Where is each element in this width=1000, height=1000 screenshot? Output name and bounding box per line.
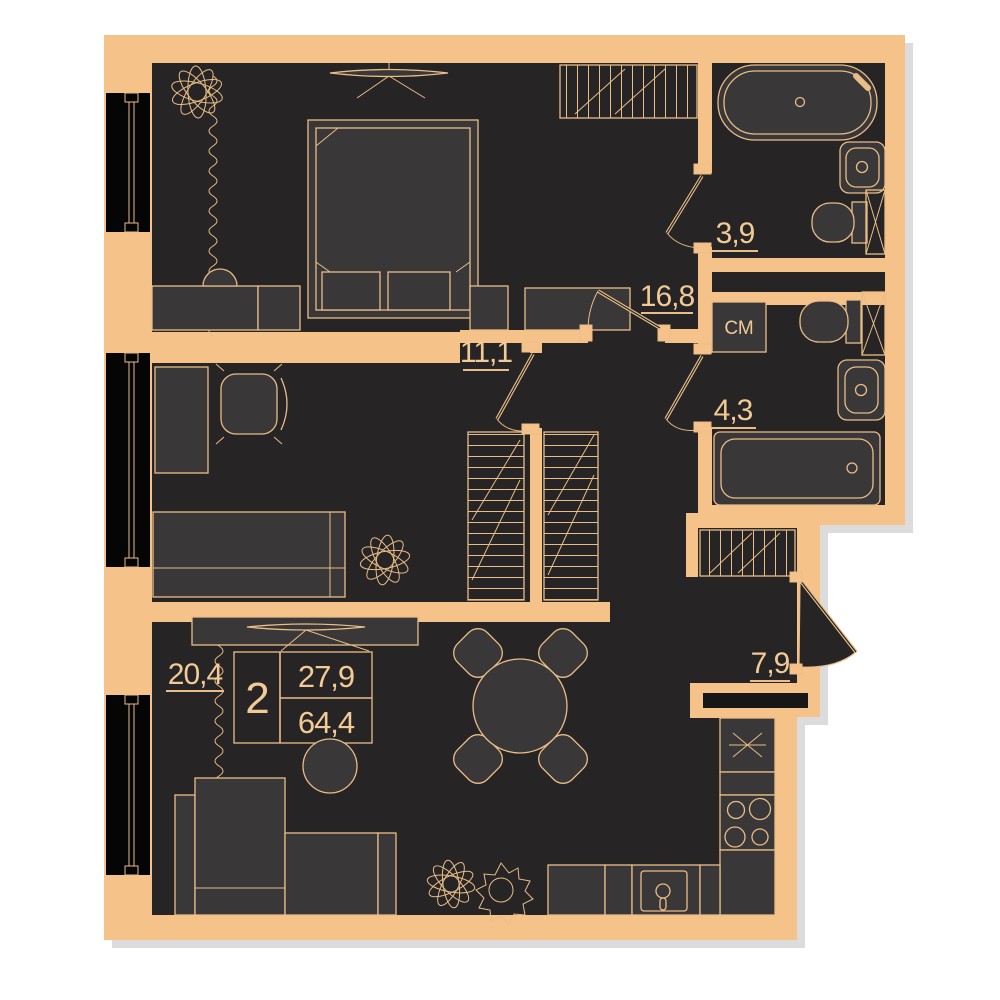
window xyxy=(106,353,150,567)
rooms-count: 2 xyxy=(245,674,268,723)
kitchen-cabinet xyxy=(700,865,720,915)
wardrobe-icon xyxy=(560,65,697,118)
bathroom-top-area-label: 3,9 xyxy=(712,217,758,251)
nightstand xyxy=(470,286,508,330)
washing-machine: СМ xyxy=(712,302,766,352)
floor-plan: 16,8 3,9 xyxy=(0,0,1000,1000)
kitchen-area-label: 7,9 xyxy=(750,647,790,681)
floor-plan-page: 16,8 3,9 xyxy=(0,0,1000,1000)
toilet-icon xyxy=(812,202,867,243)
closet-icon xyxy=(700,530,795,576)
nightstand xyxy=(258,286,300,330)
kitchen-cabinet xyxy=(720,772,775,795)
sideboard xyxy=(152,286,258,330)
desk xyxy=(155,367,208,473)
bed-icon xyxy=(308,120,478,318)
svg-text:4,3: 4,3 xyxy=(714,394,753,427)
bedroom-area-label: 16,8 xyxy=(640,280,695,313)
kitchen-cabinet xyxy=(720,850,775,915)
bathtub-icon xyxy=(718,65,877,140)
svg-text:11,1: 11,1 xyxy=(460,336,512,369)
svg-text:7,9: 7,9 xyxy=(751,647,790,680)
sink-icon xyxy=(840,142,885,193)
wall-niche xyxy=(703,693,808,708)
windows xyxy=(106,93,150,875)
kitchen-cabinet xyxy=(548,865,605,915)
window xyxy=(106,695,150,875)
svg-text:СМ: СМ xyxy=(724,318,753,339)
sink-icon xyxy=(838,360,885,420)
toilet-icon xyxy=(800,300,861,343)
dresser xyxy=(525,288,630,330)
total-area: 64,4 xyxy=(298,705,355,740)
svg-text:16,8: 16,8 xyxy=(640,280,695,313)
window xyxy=(106,93,150,232)
stove-icon xyxy=(720,795,775,850)
study-area-label: 11,1 xyxy=(460,336,512,370)
kitchen-cabinet xyxy=(605,865,632,915)
bathroom-mid-area-label: 4,3 xyxy=(710,394,756,428)
pouf-icon xyxy=(303,739,357,793)
living-room-area-label: 20,4 xyxy=(166,658,224,691)
bathtub-icon xyxy=(714,432,880,505)
kitchen-sink-icon xyxy=(632,865,700,915)
svg-text:20,4: 20,4 xyxy=(168,658,223,691)
living-area: 27,9 xyxy=(298,659,354,694)
sofa-icon xyxy=(153,512,345,597)
fridge-icon xyxy=(720,718,775,772)
hall-wardrobe-icon xyxy=(544,432,598,600)
wardrobe-icon xyxy=(468,432,524,600)
svg-text:3,9: 3,9 xyxy=(716,217,755,250)
